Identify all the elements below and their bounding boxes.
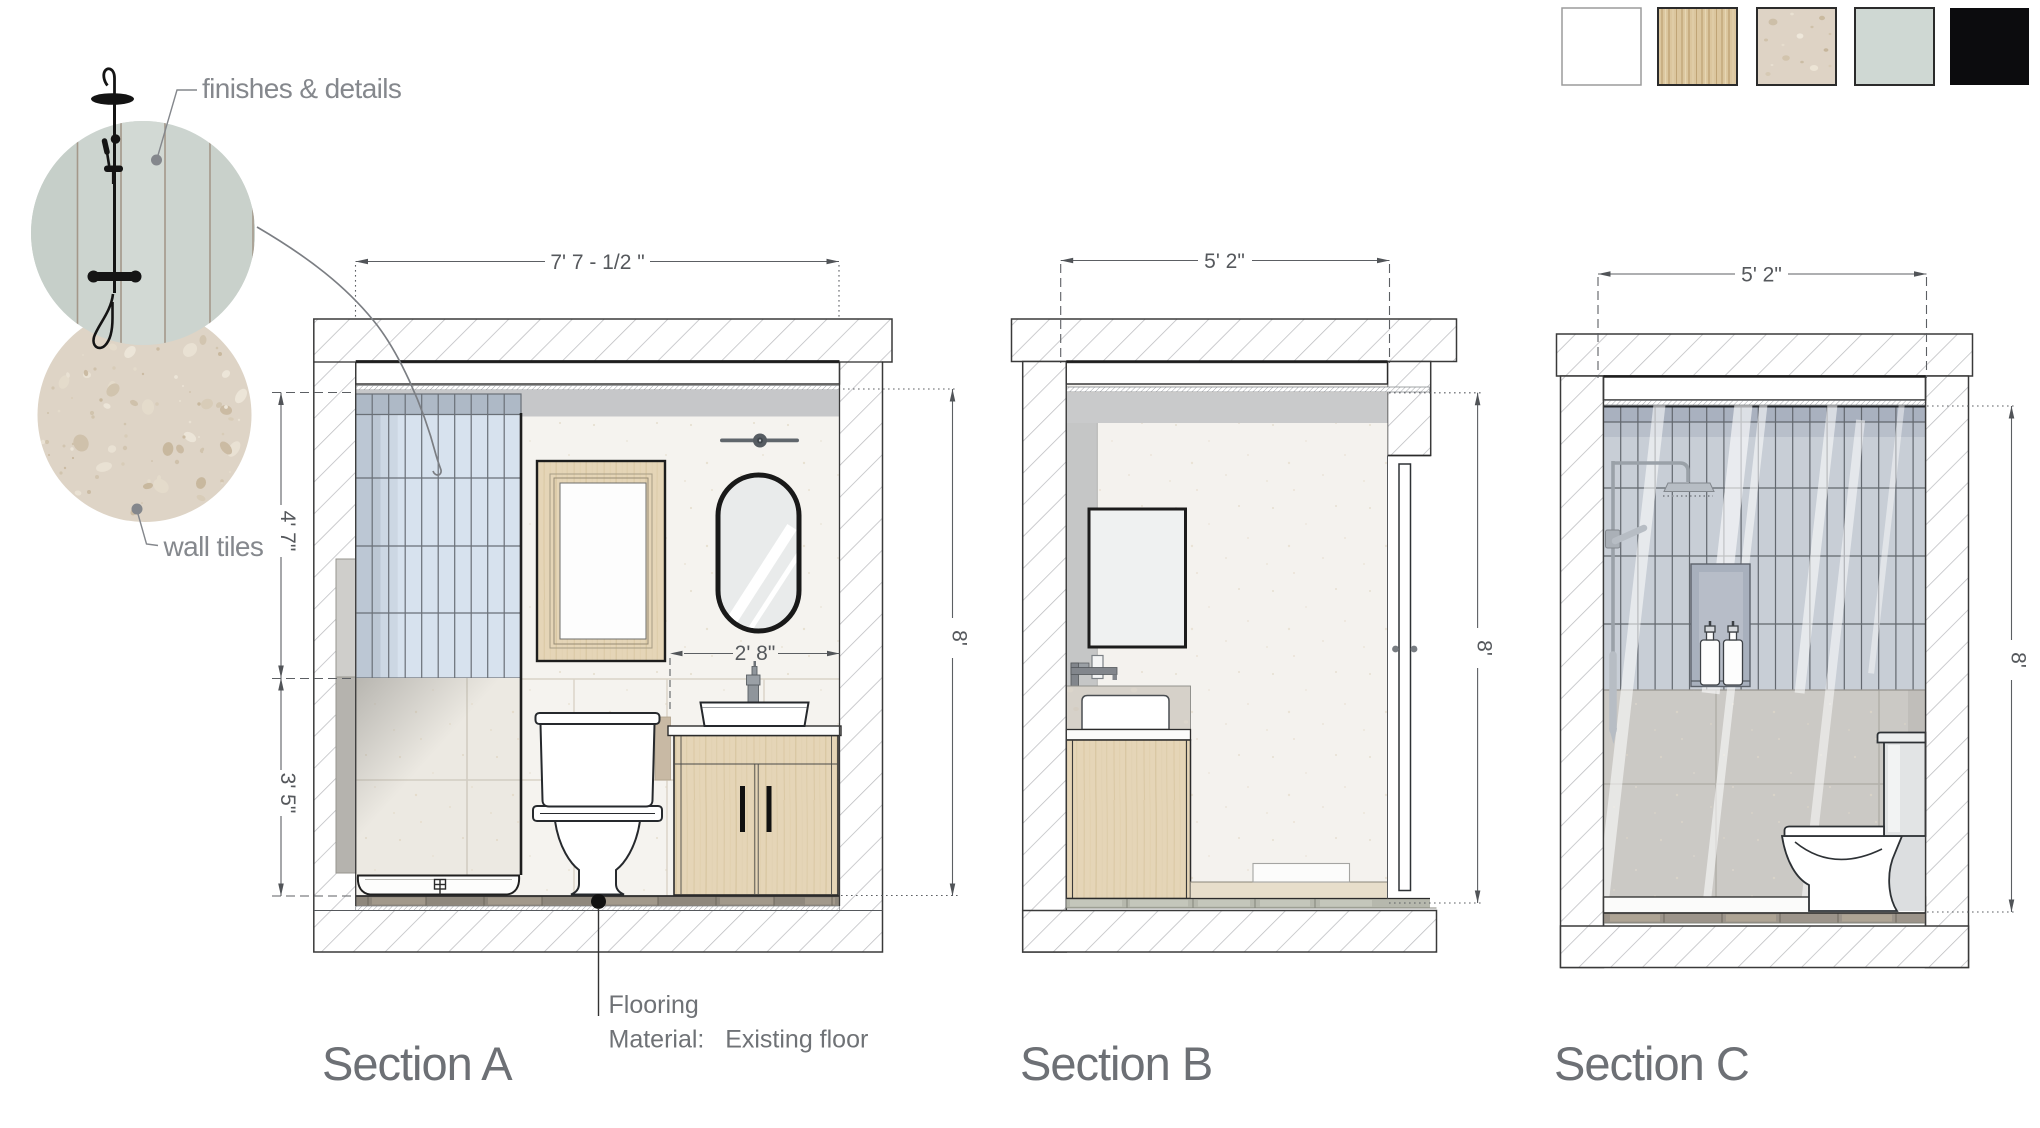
svg-text:5' 2": 5' 2": [1741, 264, 1782, 287]
svg-text:5' 2": 5' 2": [1204, 250, 1245, 273]
svg-text:8': 8': [1473, 640, 1496, 656]
svg-text:Flooring: Flooring: [609, 991, 699, 1019]
svg-text:Section B: Section B: [1020, 1037, 1212, 1090]
svg-text:7' 7 - 1/2 ": 7' 7 - 1/2 ": [550, 251, 644, 274]
svg-text:Section C: Section C: [1554, 1037, 1749, 1090]
svg-text:2' 8": 2' 8": [735, 642, 776, 665]
svg-text:Section A: Section A: [322, 1037, 513, 1090]
svg-text:finishes & details: finishes & details: [202, 73, 401, 104]
svg-text:8': 8': [2007, 652, 2030, 668]
svg-text:4' 7": 4' 7": [276, 511, 299, 552]
svg-text:wall tiles: wall tiles: [163, 531, 264, 562]
svg-text:8': 8': [948, 630, 971, 646]
svg-text:3' 5": 3' 5": [276, 773, 299, 814]
svg-text:Material: Existing floor: Material: Existing floor: [609, 1026, 869, 1054]
